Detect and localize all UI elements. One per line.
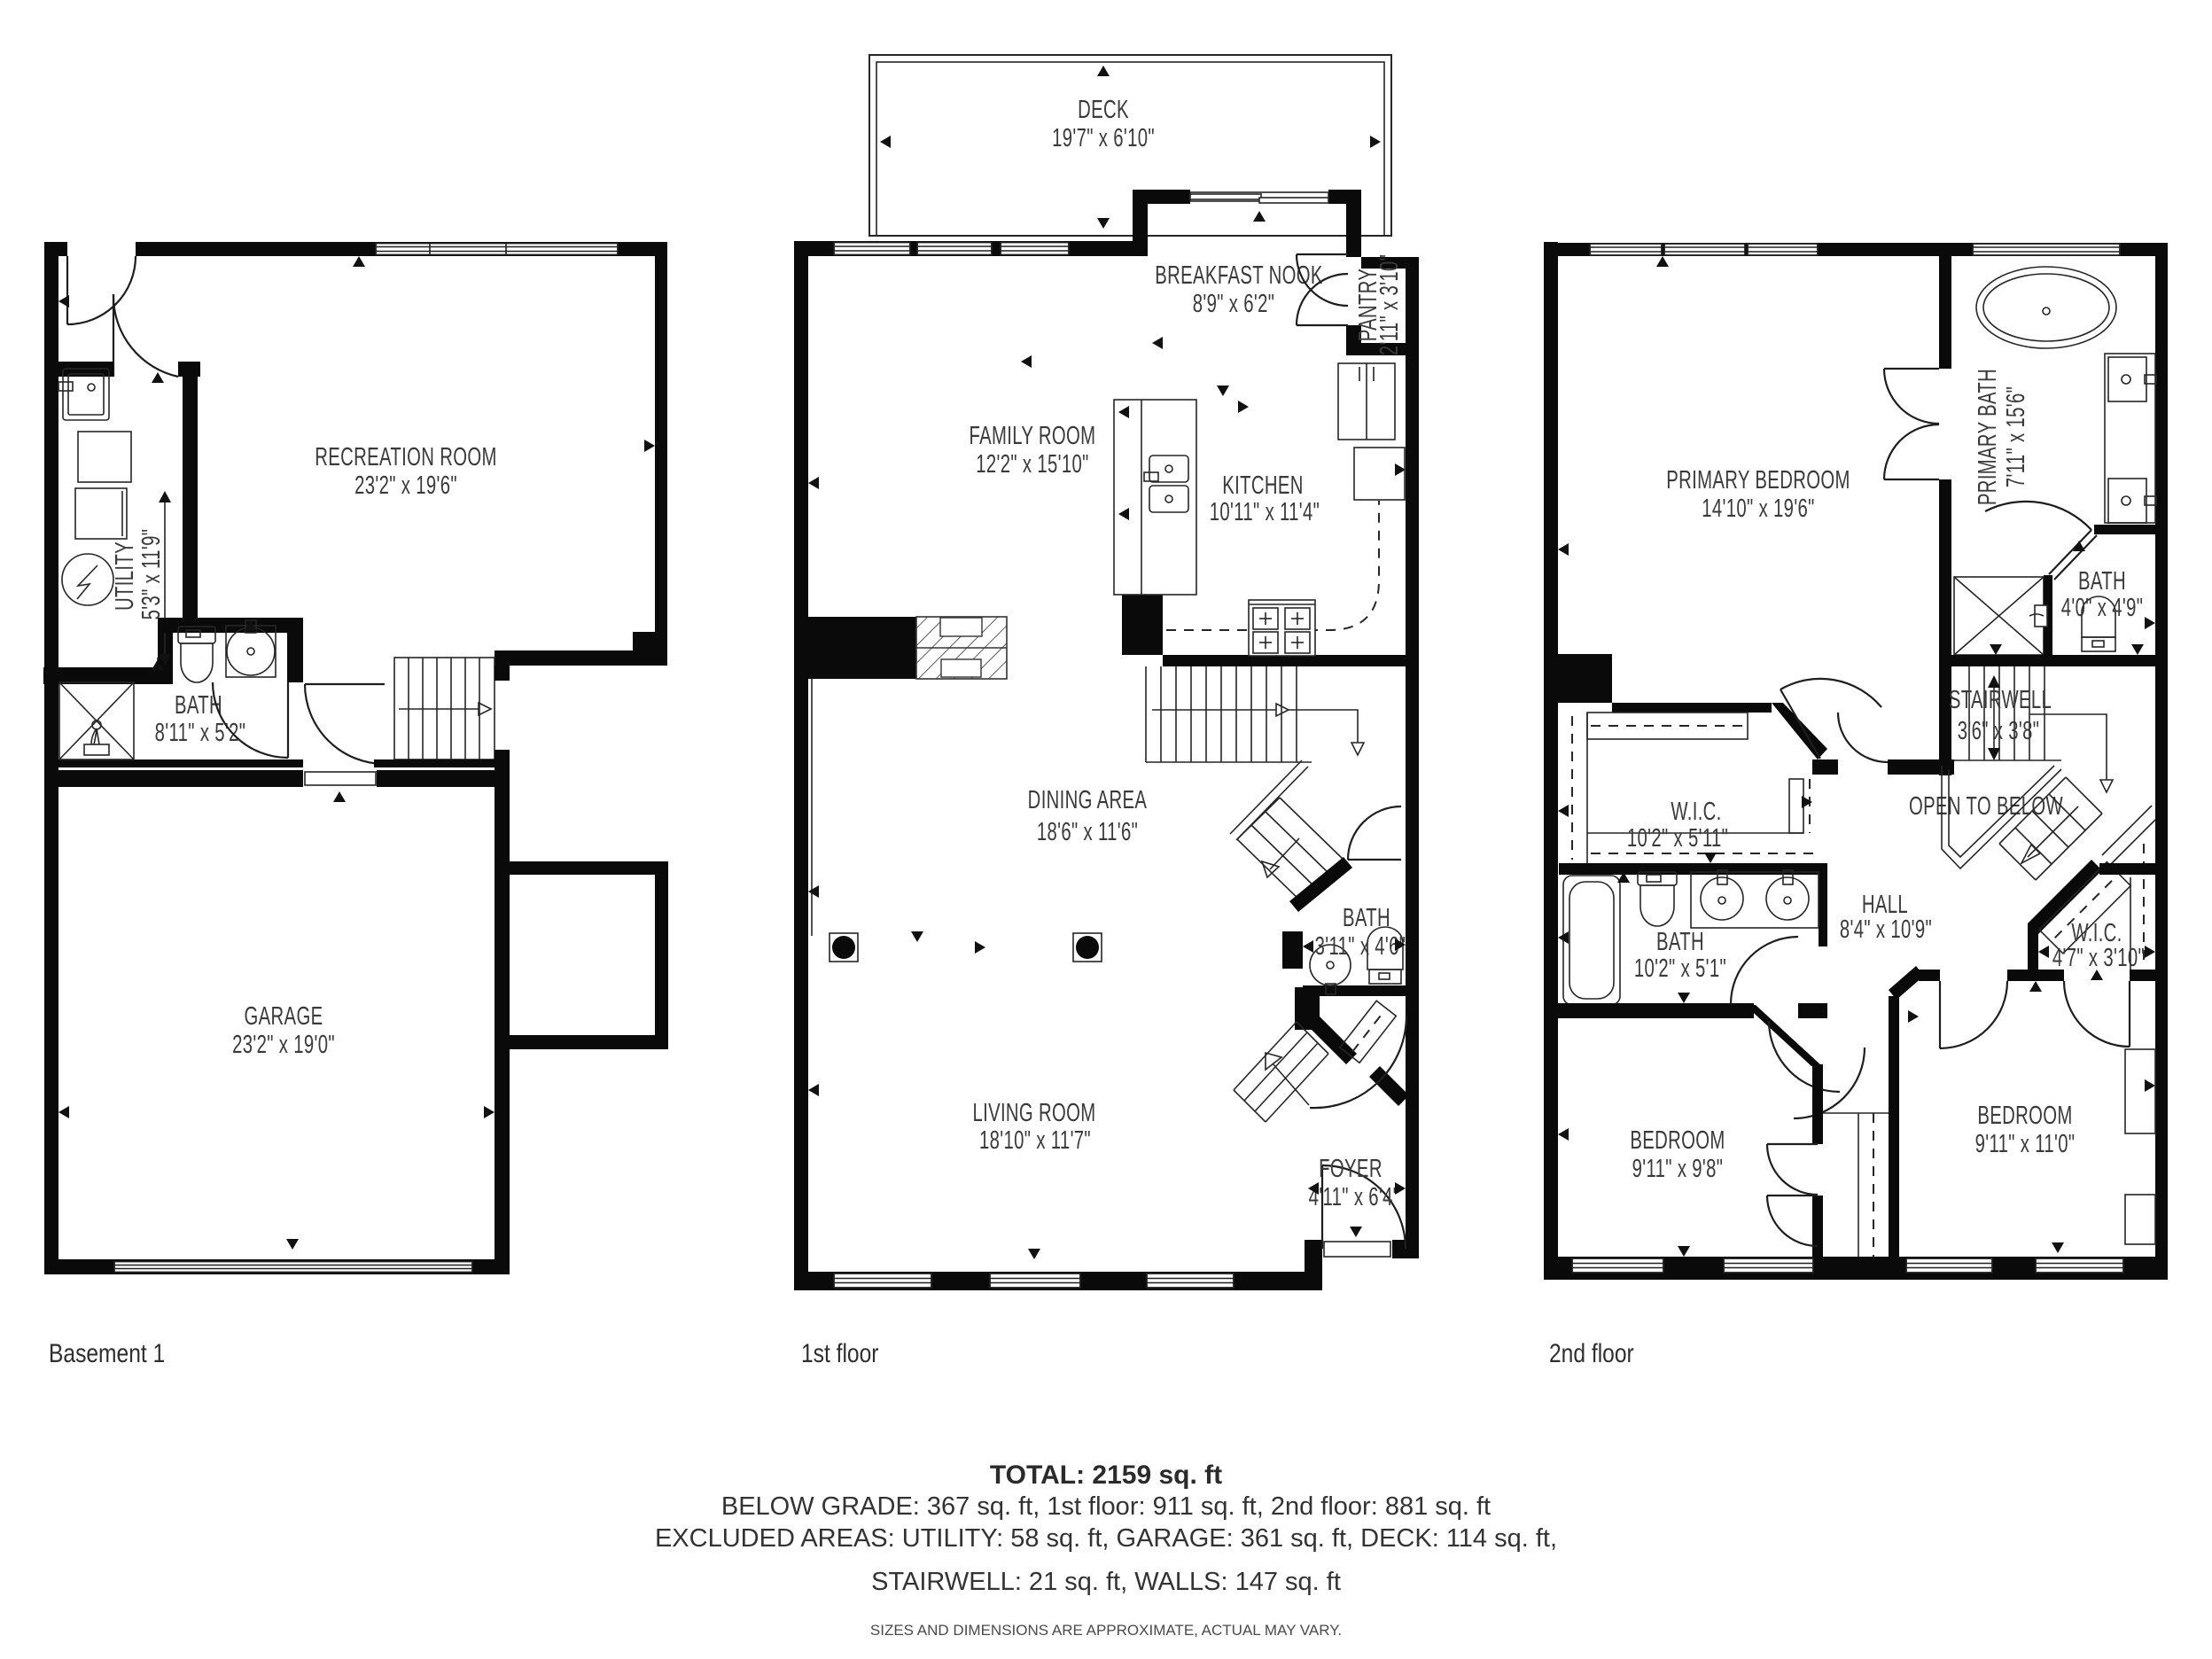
svg-text:OPEN TO BELOW: OPEN TO BELOW [1909,792,2063,821]
svg-text:23'2" x 19'0": 23'2" x 19'0" [232,1031,335,1059]
svg-text:9'11" x 9'8": 9'11" x 9'8" [1632,1155,1724,1183]
svg-text:10'11" x 11'4": 10'11" x 11'4" [1210,498,1320,526]
svg-text:23'2" x 19'6": 23'2" x 19'6" [354,471,457,500]
svg-text:1st floor: 1st floor [801,1338,878,1368]
svg-text:RECREATION ROOM: RECREATION ROOM [315,443,497,471]
svg-text:18'10" x 11'7": 18'10" x 11'7" [979,1126,1091,1155]
svg-text:9'11" x 11'0": 9'11" x 11'0" [1975,1130,2076,1158]
svg-text:FAMILY ROOM: FAMILY ROOM [970,422,1096,450]
svg-text:W.I.C.: W.I.C. [1671,798,1721,826]
svg-text:8'9" x 6'2": 8'9" x 6'2" [1193,290,1275,318]
svg-text:BEDROOM: BEDROOM [1977,1102,2072,1130]
svg-text:3'11" x 4'6": 3'11" x 4'6" [1315,932,1406,961]
svg-text:BATH: BATH [1656,928,1704,956]
svg-text:3'6" x 3'8": 3'6" x 3'8" [1958,717,2040,745]
svg-text:19'7" x 6'10": 19'7" x 6'10" [1052,124,1155,152]
svg-text:Basement 1: Basement 1 [49,1338,165,1368]
svg-text:10'2" x 5'11": 10'2" x 5'11" [1627,824,1728,853]
svg-text:10'2" x 5'1": 10'2" x 5'1" [1634,954,1726,983]
svg-text:4'0" x 4'9": 4'0" x 4'9" [2061,594,2144,622]
svg-text:4'11" x 6'4": 4'11" x 6'4" [1309,1183,1400,1211]
svg-text:STAIRWELL: 21 sq. ft, WALLS: 1: STAIRWELL: 21 sq. ft, WALLS: 147 sq. ft [871,1568,1341,1596]
svg-text:BELOW GRADE: 367 sq. ft, 1st f: BELOW GRADE: 367 sq. ft, 1st floor: 911 … [721,1492,1491,1521]
svg-text:DECK: DECK [1078,96,1129,124]
svg-text:SIZES AND DIMENSIONS ARE APPRO: SIZES AND DIMENSIONS ARE APPROXIMATE, AC… [870,1622,1342,1639]
svg-text:EXCLUDED AREAS: UTILITY: 58 sq: EXCLUDED AREAS: UTILITY: 58 sq. ft, GARA… [655,1524,1557,1553]
svg-text:BATH: BATH [1343,904,1390,932]
svg-text:18'6" x 11'6": 18'6" x 11'6" [1037,818,1138,846]
svg-text:BATH: BATH [2078,567,2126,596]
svg-text:14'10" x 19'6": 14'10" x 19'6" [1702,495,1814,523]
svg-text:PRIMARY BATH: PRIMARY BATH [1974,369,2002,505]
svg-text:STAIRWELL: STAIRWELL [1949,686,2052,714]
svg-text:UTILITY: UTILITY [111,541,139,611]
svg-text:4'7" x 3'10": 4'7" x 3'10" [2052,944,2145,972]
svg-text:12'2" x 15'10": 12'2" x 15'10" [976,450,1088,479]
svg-text:FOYER: FOYER [1319,1155,1382,1183]
svg-text:5'3" x 11'9": 5'3" x 11'9" [137,529,166,620]
svg-text:GARAGE: GARAGE [245,1002,323,1031]
svg-text:PRIMARY BEDROOM: PRIMARY BEDROOM [1666,466,1850,495]
svg-text:DINING AREA: DINING AREA [1028,786,1148,814]
svg-text:2'11" x 3'10": 2'11" x 3'10" [1375,254,1404,355]
svg-text:7'11" x 15'6": 7'11" x 15'6" [2002,386,2030,487]
svg-text:8'4" x 10'9": 8'4" x 10'9" [1840,915,1932,944]
svg-text:BEDROOM: BEDROOM [1630,1126,1725,1155]
svg-text:2nd floor: 2nd floor [1549,1338,1634,1368]
svg-text:TOTAL: 2159 sq. ft: TOTAL: 2159 sq. ft [990,1460,1222,1490]
svg-text:KITCHEN: KITCHEN [1222,471,1304,500]
svg-text:LIVING ROOM: LIVING ROOM [972,1099,1095,1127]
